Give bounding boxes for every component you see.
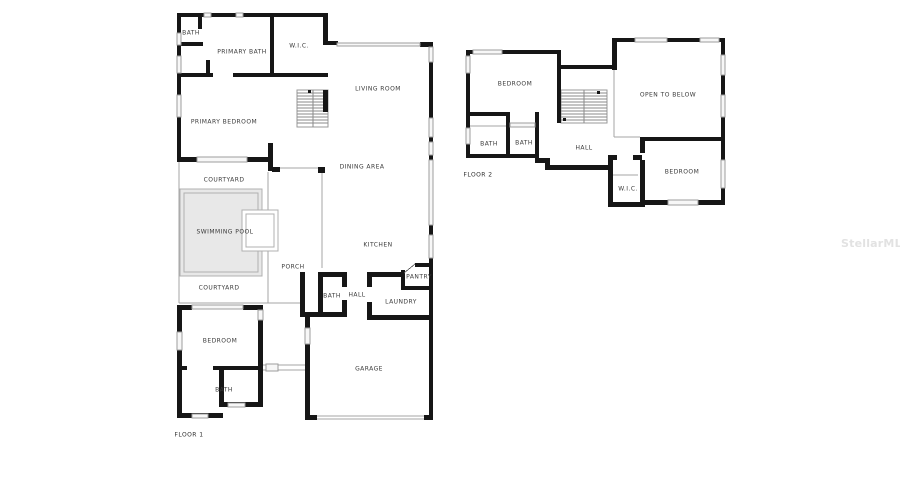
room-label-f2-hall: HALL: [575, 145, 592, 152]
room-label-f1-porch: PORCH: [281, 264, 304, 271]
floor2-tag: FLOOR 2: [463, 172, 492, 179]
room-label-f1-garage: GARAGE: [355, 366, 383, 373]
room-label-f1-kitchen: KITCHEN: [363, 242, 392, 249]
room-label-f1-swimming-pool: SWIMMING POOL: [197, 229, 254, 236]
room-label-f2-open-to-below: OPEN TO BELOW: [640, 92, 696, 99]
floor2-stairs: [561, 90, 607, 123]
room-label-f1-pantry: PANTRY: [406, 274, 432, 281]
room-label-f1-bath-2: BATH: [323, 293, 341, 300]
room-label-f2-bath-2: BATH: [515, 140, 533, 147]
floorplan-canvas: BATH PRIMARY BATH W.I.C. LIVING ROOM PRI…: [0, 0, 900, 500]
room-label-f1-bedroom: BEDROOM: [203, 338, 237, 345]
room-label-f1-laundry: LAUNDRY: [385, 299, 417, 306]
pantry-door-swing: [404, 264, 415, 273]
room-label-f1-primary-bath: PRIMARY BATH: [217, 49, 267, 56]
room-label-f1-courtyard-bottom: COURTYARD: [199, 285, 240, 292]
room-label-f1-wic: W.I.C.: [289, 43, 309, 50]
room-label-f2-wic: W.I.C.: [618, 186, 638, 193]
room-label-f1-living-room: LIVING ROOM: [355, 86, 401, 93]
room-label-f1-primary-bedroom: PRIMARY BEDROOM: [191, 119, 257, 126]
floorplan-drawing: [0, 0, 900, 500]
room-label-f2-bedroom-1: BEDROOM: [498, 81, 532, 88]
room-label-f1-hall: HALL: [348, 292, 365, 299]
room-label-f1-bath: BATH: [182, 30, 200, 37]
floor1-tag: FLOOR 1: [174, 432, 203, 439]
room-label-f1-dining-area: DINING AREA: [340, 164, 385, 171]
room-label-f1-courtyard-top: COURTYARD: [204, 177, 245, 184]
room-label-f2-bath-1: BATH: [480, 141, 498, 148]
room-label-f2-bedroom-2: BEDROOM: [665, 169, 699, 176]
stellar-mls-watermark: StellarMLS: [841, 237, 900, 250]
room-label-f1-bath-3: BATH: [215, 387, 233, 394]
